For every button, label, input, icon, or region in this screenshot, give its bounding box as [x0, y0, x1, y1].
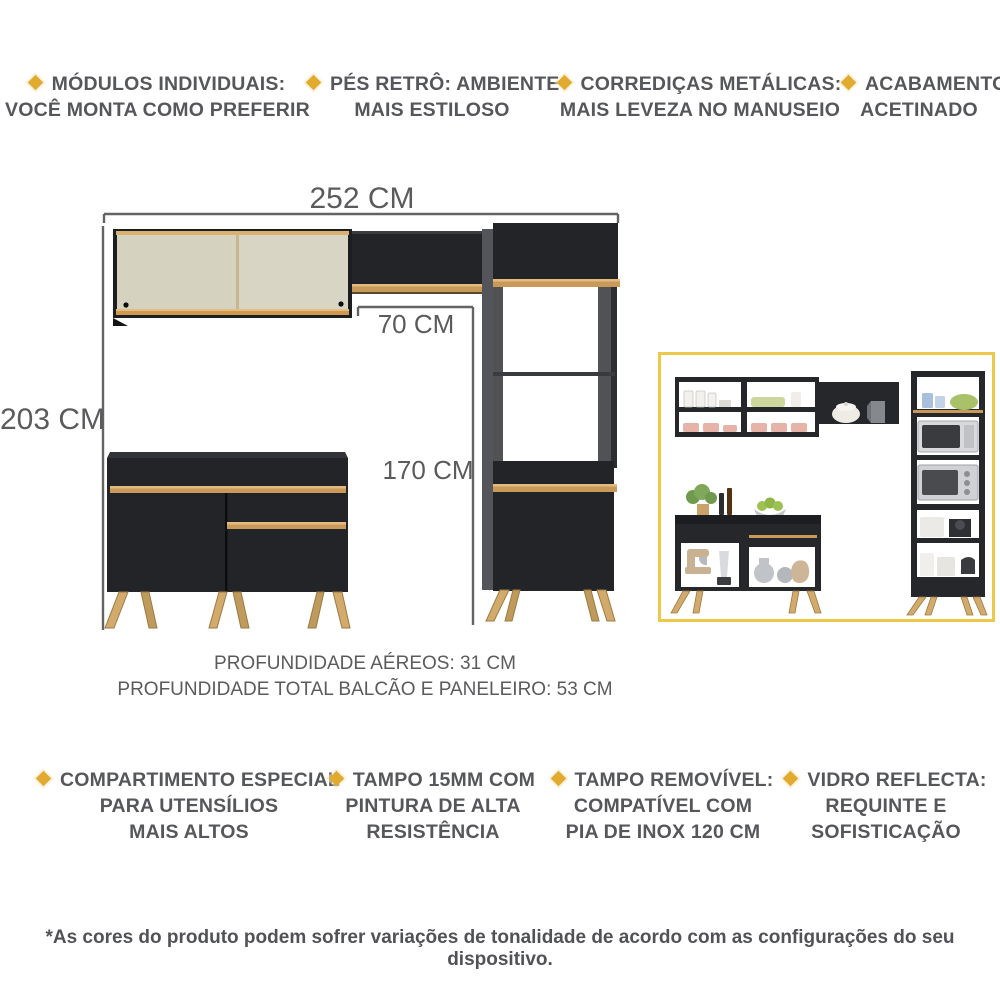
- color-disclaimer: *As cores do produto podem sofrer variaç…: [0, 927, 1000, 971]
- feature-line: MAIS ESTILOSO: [308, 97, 556, 123]
- diamond-bullet-icon: [27, 75, 43, 91]
- diamond-bullet-icon: [783, 771, 799, 787]
- product-infographic: { "features_top": [ {"lines": ["MÓDULOS …: [0, 0, 1000, 1000]
- styled-photo-scene: [661, 355, 992, 619]
- diamond-bullet-icon: [556, 75, 572, 91]
- base-cabinet: [105, 452, 350, 628]
- feature-line: MAIS LEVEZA NO MANUSEIO: [552, 97, 848, 123]
- base-cabinet-legs: [105, 592, 350, 628]
- feature-line: RESISTÊNCIA: [326, 819, 540, 845]
- feature-line: REQUINTE E: [774, 793, 998, 819]
- feature-line: PÉS RETRÔ: AMBIENTE: [330, 73, 560, 95]
- feature-line: TAMPO REMOVÍVEL:: [575, 769, 774, 791]
- diamond-bullet-icon: [841, 75, 857, 91]
- styled-photo-inset: [658, 352, 995, 622]
- depth-note-aereos: PROFUNDIDADE AÉREOS: 31 CM: [70, 651, 660, 677]
- feature-line: COMPATÍVEL COM: [544, 793, 782, 819]
- diamond-bullet-icon: [36, 771, 52, 787]
- tall-cabinet-legs: [486, 590, 615, 621]
- kitchen-line-drawing: [90, 183, 640, 643]
- diamond-bullet-icon: [306, 75, 322, 91]
- photo-base-cabinet: [671, 484, 821, 613]
- feature-line: PIA DE INOX 120 CM: [544, 819, 782, 845]
- feature-compartimento-especial: COMPARTIMENTO ESPECIAL PARA UTENSÍLIOS M…: [33, 767, 345, 845]
- feature-line: ACETINADO: [843, 97, 995, 123]
- feature-tampo-removivel: TAMPO REMOVÍVEL: COMPATÍVEL COM PIA DE I…: [544, 767, 782, 845]
- tall-cabinet: [482, 223, 620, 621]
- feature-acabamento-acetinado: ACABAMENTO ACETINADO: [843, 71, 995, 123]
- dimension-upper-width: 70 CM: [357, 309, 475, 340]
- feature-vidro-reflecta: VIDRO REFLECTA: REQUINTE E SOFISTICAÇÃO: [774, 767, 998, 845]
- feature-line: VOCÊ MONTA COMO PREFERIR: [5, 97, 310, 123]
- feature-line: CORREDIÇAS METÁLICAS:: [581, 73, 842, 95]
- feature-modulos-individuais: MÓDULOS INDIVIDUAIS: VOCÊ MONTA COMO PRE…: [5, 71, 310, 123]
- dimension-total-height: 203 CM: [0, 403, 95, 437]
- feature-pes-retro: PÉS RETRÔ: AMBIENTE MAIS ESTILOSO: [308, 71, 556, 123]
- feature-tampo-15mm: TAMPO 15MM COM PINTURA DE ALTA RESISTÊNC…: [326, 767, 540, 845]
- feature-line: VIDRO REFLECTA:: [807, 769, 986, 791]
- feature-line: PINTURA DE ALTA: [326, 793, 540, 819]
- photo-wall-cabinet-open: [675, 377, 819, 437]
- photo-tall-cabinet: [907, 371, 987, 615]
- feature-line: MÓDULOS INDIVIDUAIS:: [52, 73, 286, 95]
- feature-line: COMPARTIMENTO ESPECIAL: [60, 769, 340, 791]
- diamond-bullet-icon: [550, 771, 566, 787]
- dimension-tower-height: 170 CM: [368, 455, 488, 486]
- wall-cabinet-sliding-doors: [113, 229, 352, 326]
- photo-plant: [686, 484, 717, 515]
- photo-wall-cabinet-center: [819, 382, 899, 424]
- feature-line: PARA UTENSÍLIOS: [33, 793, 345, 819]
- feature-corredicas-metalicas: CORREDIÇAS METÁLICAS: MAIS LEVEZA NO MAN…: [552, 71, 848, 123]
- feature-line: MAIS ALTOS: [33, 819, 345, 845]
- depth-note-balcao: PROFUNDIDADE TOTAL BALCÃO E PANELEIRO: 5…: [70, 677, 660, 703]
- feature-line: TAMPO 15MM COM: [353, 769, 535, 791]
- depth-notes: PROFUNDIDADE AÉREOS: 31 CM PROFUNDIDADE …: [70, 651, 660, 702]
- dimension-total-width: 252 CM: [282, 182, 442, 216]
- feature-line: ACABAMENTO: [865, 73, 1000, 95]
- wall-cabinet-black: [352, 231, 489, 294]
- diamond-bullet-icon: [329, 771, 345, 787]
- feature-line: SOFISTICAÇÃO: [774, 819, 998, 845]
